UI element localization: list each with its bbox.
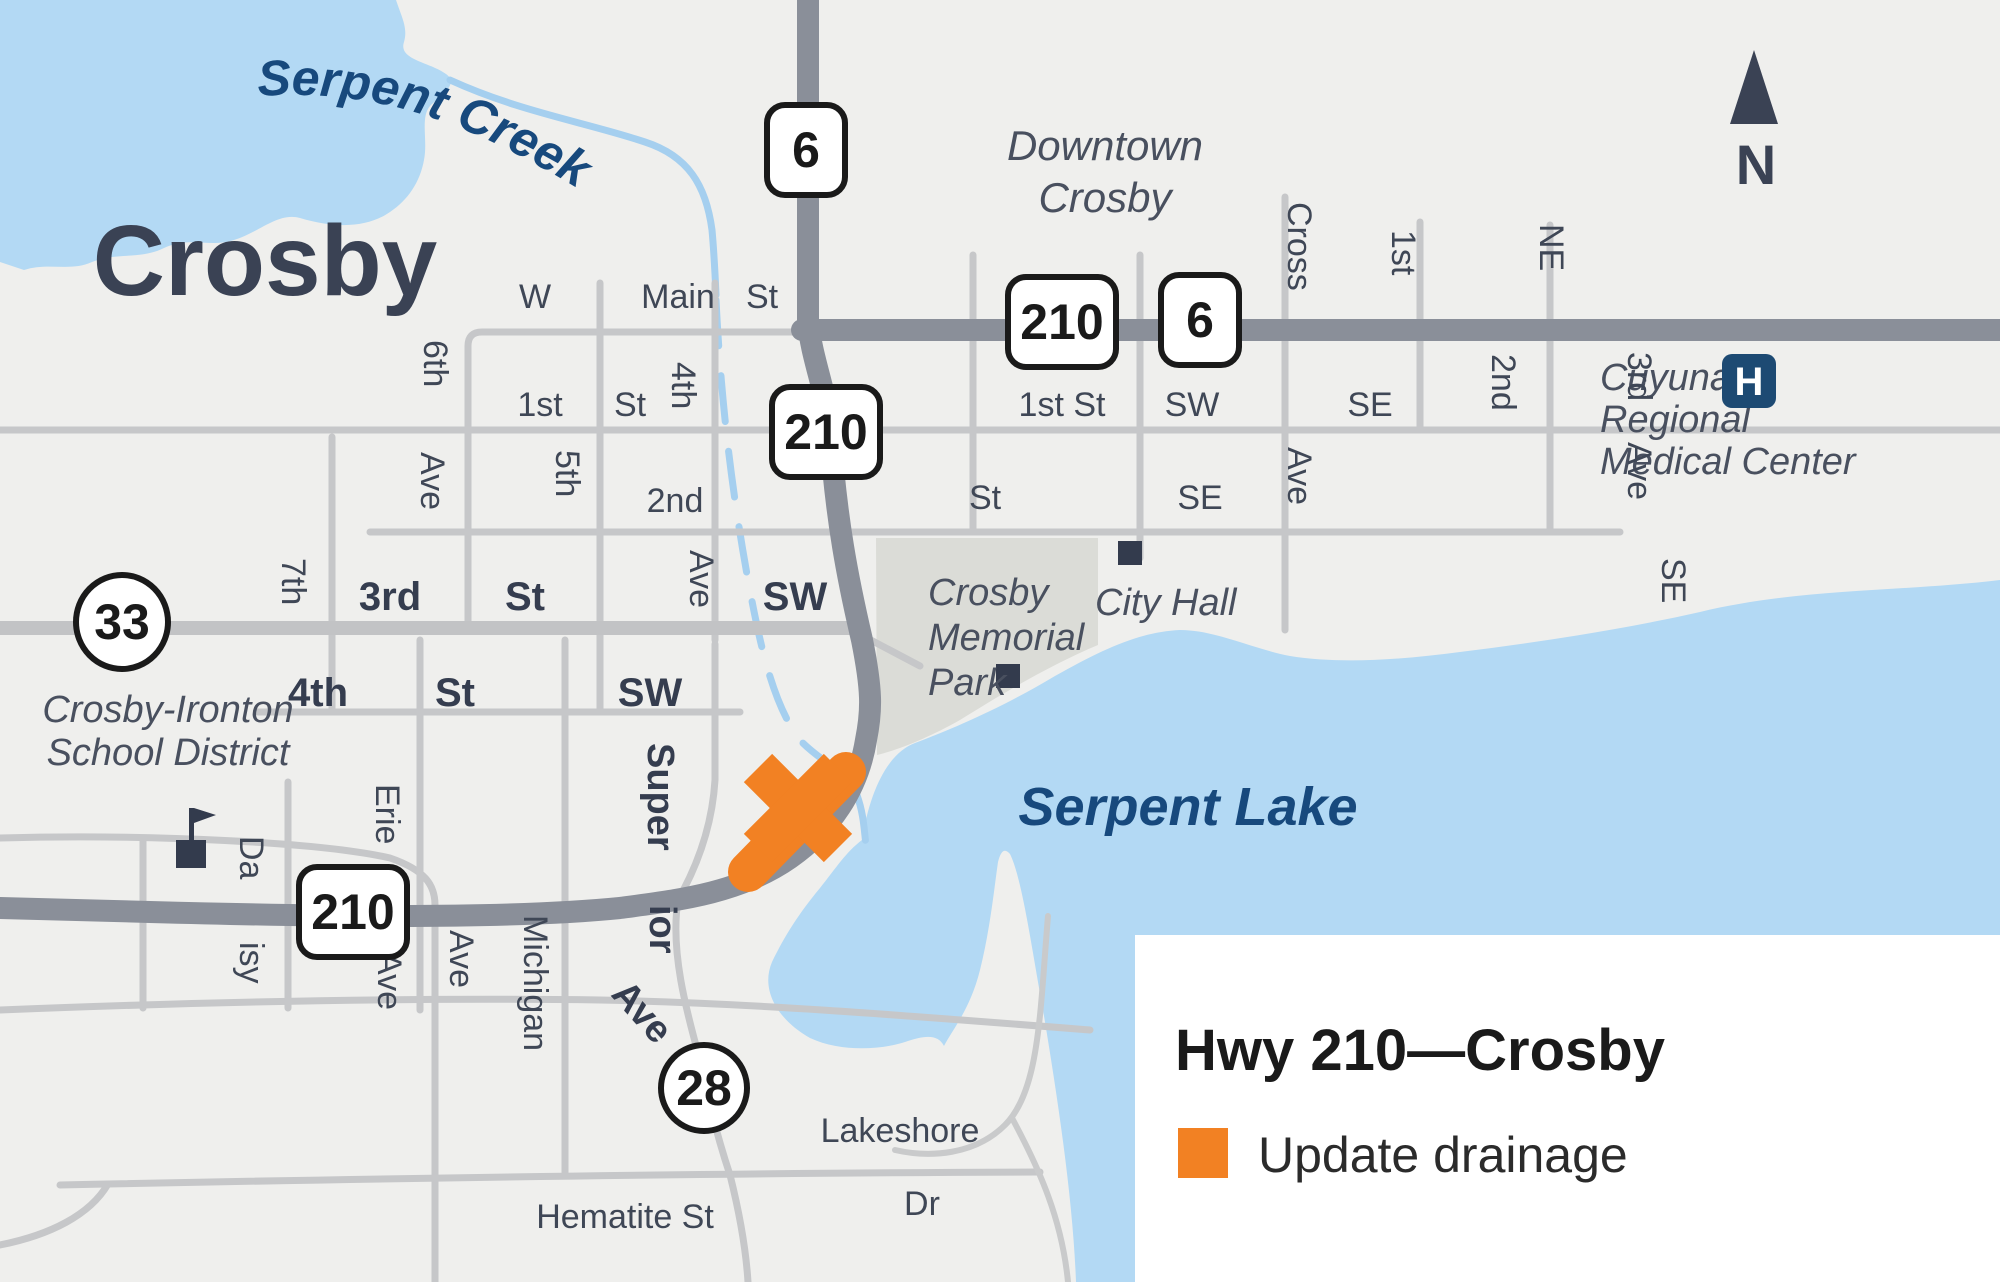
svg-text:210: 210: [311, 884, 394, 940]
street-label-5th: 5th: [548, 450, 586, 497]
street-label-daisy-lower: isy: [232, 942, 270, 984]
downtown-label-line1: Downtown: [1007, 122, 1203, 169]
street-label-hematite: Hematite St: [536, 1198, 714, 1236]
shield-hwy6-main: 6: [1161, 275, 1239, 365]
street-label-se-2nd: 2nd: [1484, 354, 1522, 411]
street-label-4th-ave-num: 4th: [664, 362, 702, 409]
street-label-cross-ave: Ave: [1280, 447, 1318, 505]
svg-text:6: 6: [792, 122, 820, 178]
street-label-7th: 7th: [274, 558, 312, 605]
city-label: Crosby: [93, 205, 438, 317]
street-label-6th: 6th: [416, 340, 454, 387]
svg-text:210: 210: [784, 404, 867, 460]
north-arrow-letter: N: [1736, 133, 1776, 196]
street-label-superior-2: ior: [641, 905, 683, 954]
street-label-3rd-st: St: [505, 575, 545, 619]
school-district-label-line2: School District: [47, 732, 291, 774]
street-label-lakeshore-dr: Dr: [904, 1185, 940, 1223]
street-label-se-3rd: 3rd: [1620, 352, 1658, 401]
street-label-e-2nd-st: St: [969, 479, 1002, 517]
street-label-se-vertical: SE: [1654, 558, 1692, 603]
svg-text:6: 6: [1186, 292, 1214, 348]
street-label-4th-st: St: [435, 671, 475, 715]
school-district-label-line1: Crosby-Ironton: [42, 689, 293, 731]
hospital-icon-letter: H: [1735, 360, 1764, 404]
hospital-icon: H: [1722, 354, 1776, 408]
street-label-michigan: Michigan: [516, 915, 554, 1051]
shield-hwy210-west: 210: [299, 867, 407, 957]
lake-label: Serpent Lake: [1018, 777, 1357, 837]
svg-text:210: 210: [1020, 294, 1103, 350]
city-hall-label: City Hall: [1095, 582, 1238, 624]
street-label-cross: Cross: [1280, 202, 1318, 291]
street-label-3rd: 3rd: [359, 575, 421, 619]
street-label-ne: NE: [1532, 224, 1570, 271]
street-label-main-st: St: [746, 278, 779, 316]
memorial-park-label-line2: Memorial: [928, 617, 1086, 659]
street-label-w: W: [519, 278, 551, 316]
street-label-erie: Erie: [368, 784, 406, 844]
shield-hwy210-south: 210: [772, 387, 880, 477]
downtown-label-line2: Crosby: [1038, 174, 1174, 221]
street-label-lakeshore: Lakeshore: [821, 1112, 980, 1150]
street-label-e-2nd-se: SE: [1177, 479, 1222, 517]
street-label-4th-ave: Ave: [682, 550, 720, 608]
legend: Hwy 210—Crosby Update drainage: [1135, 935, 2000, 1282]
medical-center-label-line1: Cuyuna: [1600, 357, 1731, 399]
street-label-6th-ave: Ave: [413, 452, 451, 510]
street-label-ne-1st: 1st: [1384, 230, 1422, 276]
street-label-4th-sw: SW: [618, 671, 683, 715]
street-label-1st: 1st: [517, 386, 563, 424]
street-label-4th: 4th: [288, 671, 348, 715]
legend-title: Hwy 210—Crosby: [1175, 1018, 1665, 1083]
legend-swatch-update-drainage: [1178, 1128, 1228, 1178]
street-label-e-1st-se: SE: [1347, 386, 1392, 424]
street-label-e-1st-st: 1st St: [1019, 386, 1106, 424]
street-label-daisy-upper: Da: [232, 836, 270, 880]
shield-hwy33: 33: [76, 575, 168, 669]
street-label-erie-ave: Ave: [370, 952, 408, 1010]
svg-text:33: 33: [94, 594, 150, 650]
memorial-park-label-line1: Crosby: [928, 572, 1050, 614]
street-label-superior-1: Super: [639, 743, 681, 851]
project-map: Crosby Serpent Creek Serpent Lake Downto…: [0, 0, 2000, 1282]
svg-text:28: 28: [676, 1060, 732, 1116]
street-label-1st-st: St: [614, 386, 647, 424]
street-label-michigan-ave: Ave: [442, 930, 480, 988]
shield-hwy210-main: 210: [1008, 277, 1116, 367]
city-hall-marker: [1118, 541, 1142, 565]
street-label-2nd: 2nd: [647, 482, 704, 520]
school-marker: [176, 840, 206, 868]
legend-item-update-drainage: Update drainage: [1258, 1127, 1628, 1183]
street-label-3rd-sw: SW: [763, 575, 828, 619]
street-label-e-1st-sw: SW: [1165, 386, 1220, 424]
street-label-main: Main: [641, 278, 715, 316]
map-canvas: Crosby Serpent Creek Serpent Lake Downto…: [0, 0, 2000, 1282]
memorial-park-label-line3: Park: [928, 662, 1008, 704]
legend-panel: [1135, 935, 2000, 1282]
shield-hwy28: 28: [661, 1045, 747, 1131]
street-label-se-3rd-ave: Ave: [1620, 442, 1658, 500]
shield-hwy6-north: 6: [767, 105, 845, 195]
